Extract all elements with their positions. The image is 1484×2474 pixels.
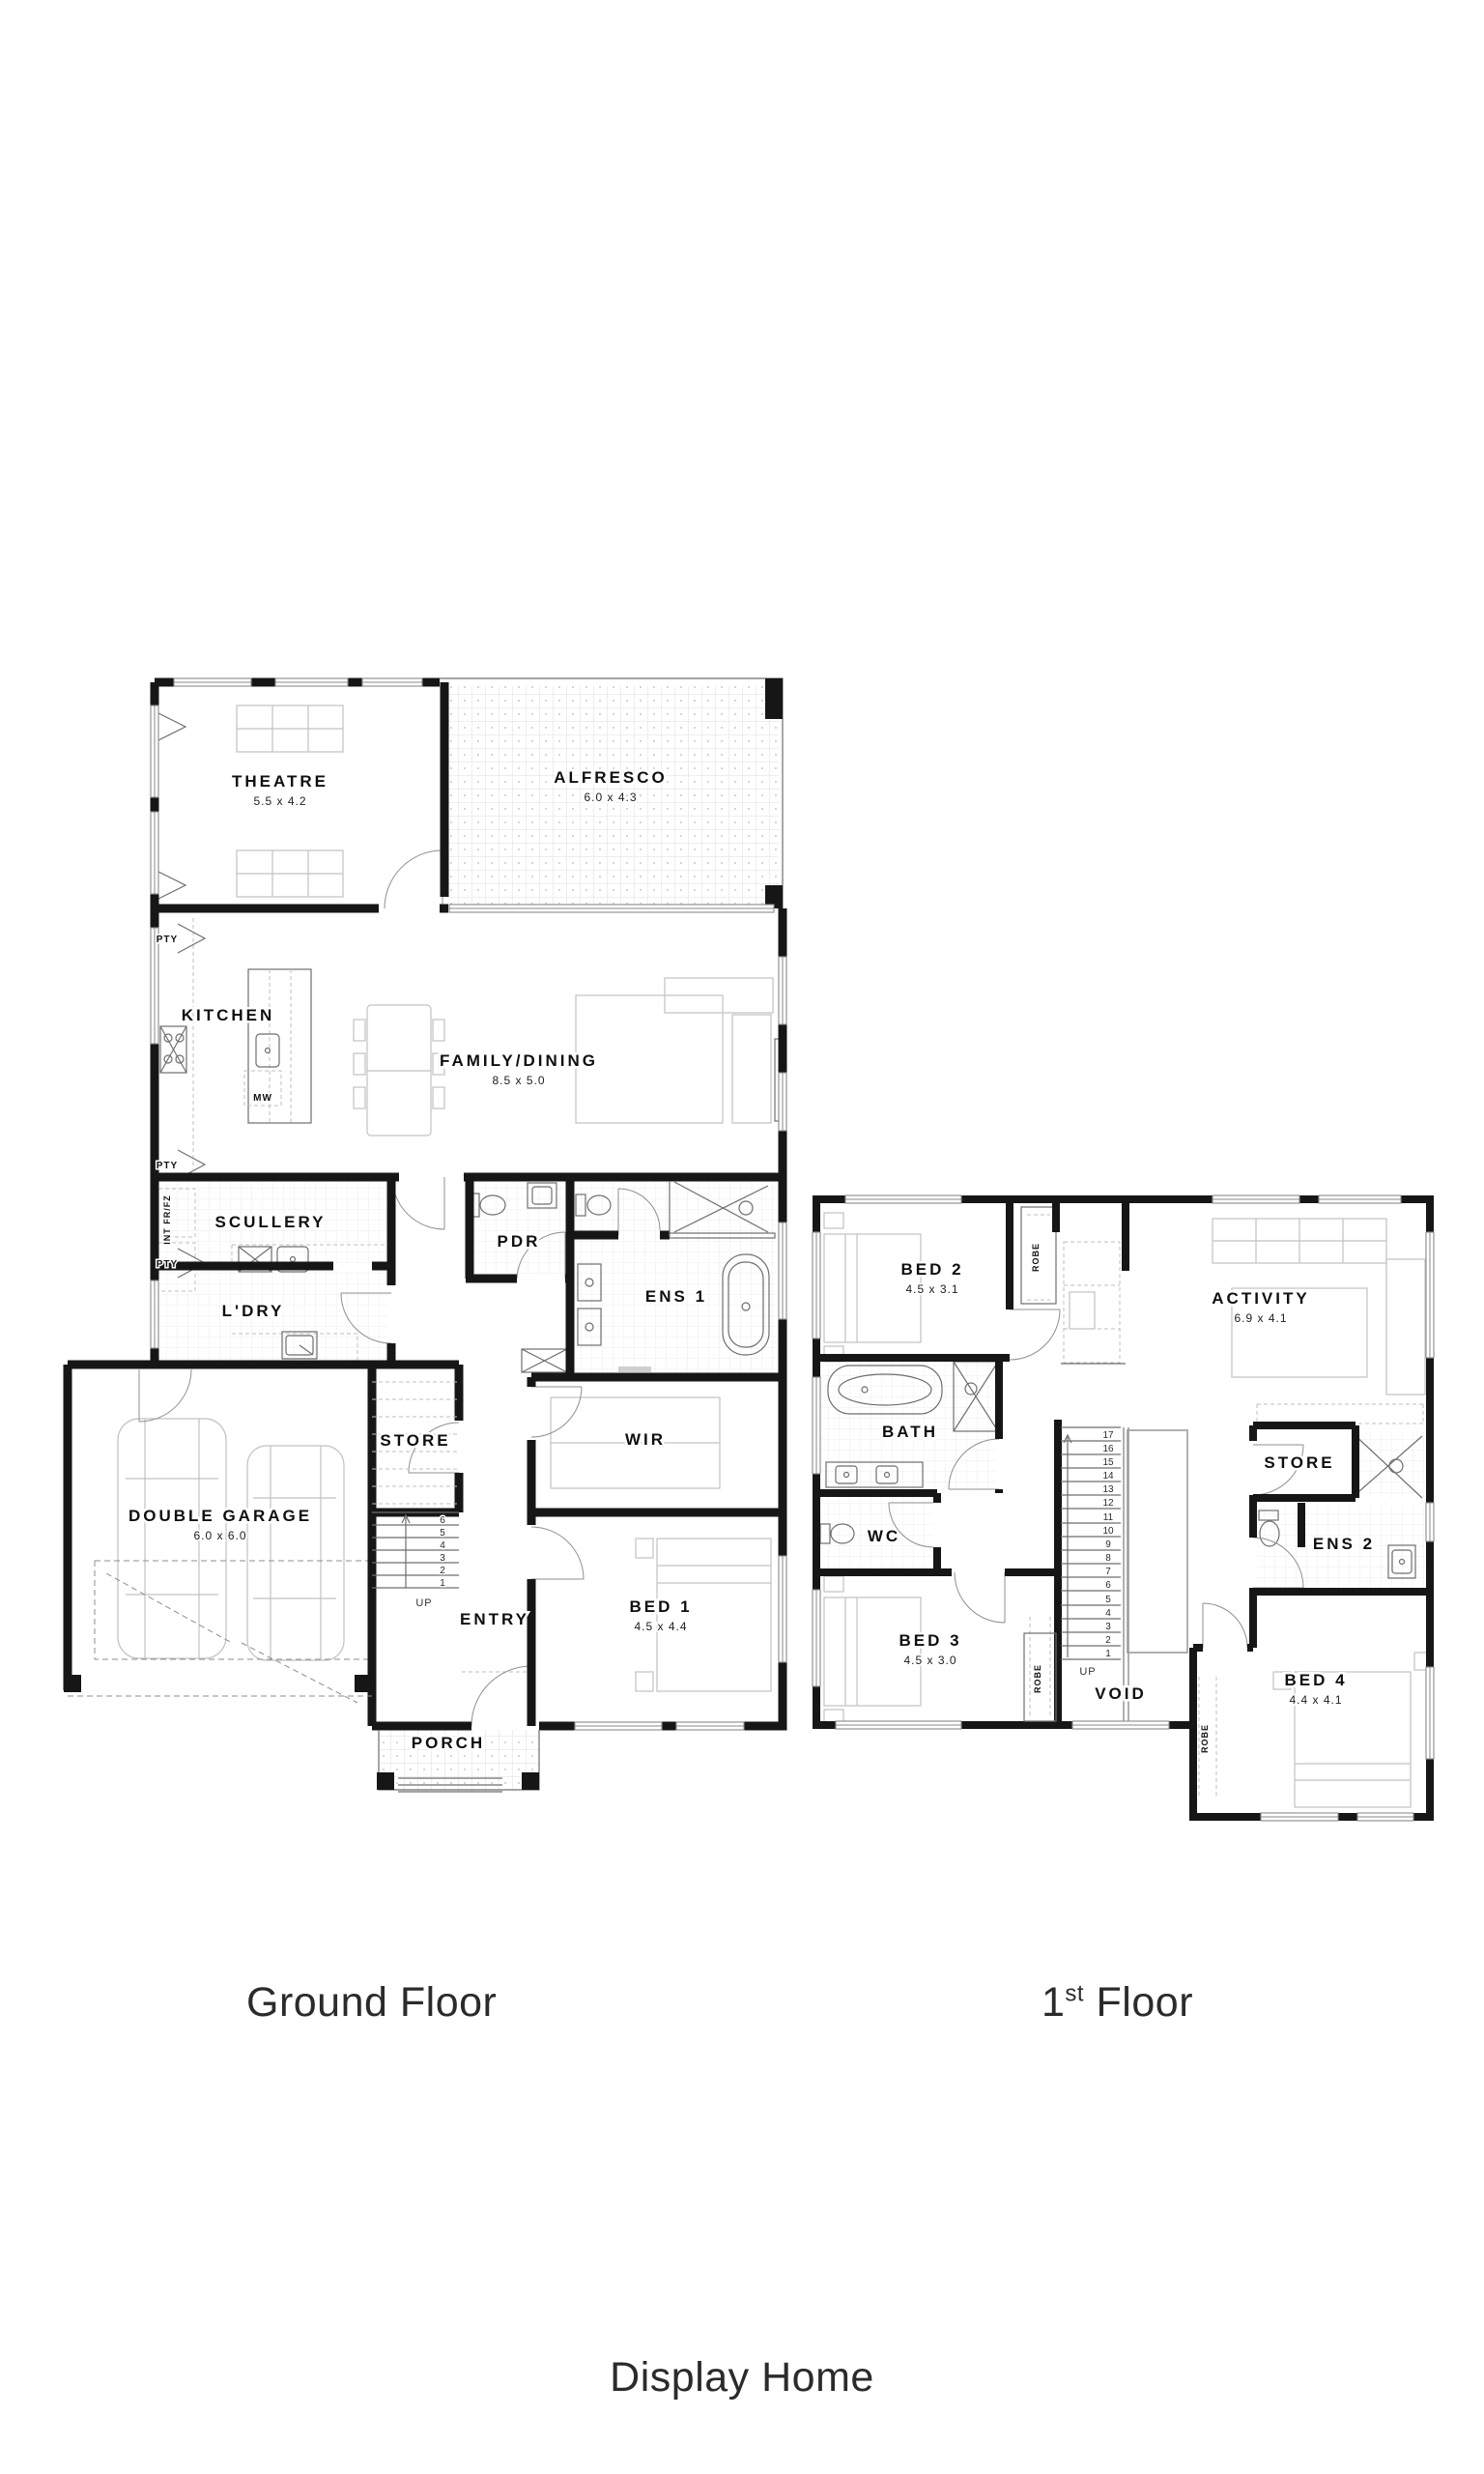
mw-label: MW (253, 1093, 272, 1104)
pty-label-1: PTY (157, 935, 178, 945)
first-floor-plan: BED 2 4.5 x 3.1 ACTIVITY 6.9 x 4.1 BATH … (807, 1184, 1444, 1860)
stair-num: 1 (1105, 1649, 1111, 1659)
stair-num: 16 (1102, 1444, 1114, 1454)
first-floor-caption-number: 1 (1042, 1979, 1065, 2026)
stair-num: 5 (1105, 1595, 1111, 1605)
bed3-label: BED 3 (899, 1631, 961, 1650)
first-floor-caption-word: Floor (1084, 1979, 1193, 2026)
stair-num: 8 (1105, 1553, 1111, 1564)
ens2-label: ENS 2 (1313, 1535, 1375, 1553)
garage-label: DOUBLE GARAGE (128, 1507, 312, 1525)
stair-num: 1 (440, 1578, 445, 1589)
ens1-label: ENS 1 (645, 1287, 707, 1306)
stair-num: 14 (1102, 1471, 1114, 1482)
alfresco-label: ALFRESCO (554, 768, 668, 787)
bed4-label: BED 4 (1284, 1671, 1347, 1689)
ground-floor-stairs (372, 1382, 459, 1588)
bed2-label: BED 2 (900, 1260, 963, 1279)
pdr-label: PDR (498, 1232, 541, 1251)
display-home-caption: Display Home (0, 2354, 1484, 2402)
stair-num: 2 (1105, 1635, 1111, 1646)
stair-num: 3 (440, 1553, 445, 1564)
up-label-first: UP (1079, 1666, 1096, 1678)
ground-floor-caption: Ground Floor (246, 1979, 497, 2027)
robe-label-1: ROBE (1031, 1243, 1041, 1272)
kitchen-label: KITCHEN (182, 1006, 275, 1024)
stair-num: 6 (440, 1515, 445, 1526)
ground-floor-plan: THEATRE 5.5 x 4.2 ALFRESCO 6.0 x 4.3 KIT… (39, 667, 792, 1827)
stair-num: 4 (440, 1540, 445, 1551)
first-floor-caption-ordinal: st (1065, 1981, 1084, 2007)
stair-num: 13 (1102, 1484, 1114, 1495)
robe-label-2: ROBE (1033, 1664, 1042, 1693)
theatre-label: THEATRE (232, 772, 328, 791)
wc-label: WC (868, 1527, 900, 1545)
stair-num: 11 (1103, 1512, 1114, 1523)
stair-num: 6 (1105, 1580, 1111, 1591)
bed3-dim: 4.5 x 3.0 (903, 1654, 956, 1667)
stair-num: 17 (1102, 1430, 1114, 1441)
theatre-dim: 5.5 x 4.2 (253, 794, 306, 808)
porch-label: PORCH (412, 1734, 485, 1752)
int-frfz-label: INT FR/FZ (162, 1194, 172, 1245)
family-dining-dim: 8.5 x 5.0 (492, 1074, 545, 1087)
up-label-ground: UP (415, 1597, 432, 1609)
stair-num: 2 (440, 1566, 445, 1576)
entry-label: ENTRY (460, 1610, 529, 1628)
stair-num: 3 (1105, 1622, 1111, 1632)
stair-num: 10 (1102, 1526, 1114, 1537)
bed2-dim: 4.5 x 3.1 (905, 1282, 958, 1296)
void-label: VOID (1095, 1684, 1147, 1703)
ldry-label: L'DRY (222, 1302, 285, 1320)
first-floor-caption: 1st Floor (1042, 1979, 1193, 2027)
bed1-label: BED 1 (629, 1597, 692, 1616)
store-label-first: STORE (1264, 1453, 1334, 1472)
pty-label-2: PTY (157, 1161, 178, 1171)
garage-dim: 6.0 x 6.0 (193, 1529, 246, 1542)
bath-label: BATH (882, 1423, 938, 1441)
alfresco-dim: 6.0 x 4.3 (584, 791, 637, 804)
pty-label-3: PTY (157, 1259, 178, 1270)
stair-num: 4 (1105, 1608, 1111, 1619)
bed1-dim: 4.5 x 4.4 (634, 1620, 687, 1633)
stair-num: 12 (1102, 1498, 1114, 1509)
floorplan-page: THEATRE 5.5 x 4.2 ALFRESCO 6.0 x 4.3 KIT… (0, 0, 1484, 2474)
robe-label-3: ROBE (1200, 1724, 1210, 1753)
wir-label: WIR (625, 1430, 666, 1449)
stair-num: 9 (1105, 1539, 1111, 1550)
stair-num: 7 (1105, 1567, 1111, 1577)
activity-dim: 6.9 x 4.1 (1234, 1311, 1287, 1325)
scullery-label: SCULLERY (215, 1213, 327, 1231)
activity-label: ACTIVITY (1212, 1289, 1309, 1308)
bed4-dim: 4.4 x 4.1 (1289, 1693, 1342, 1707)
stair-num: 5 (440, 1528, 445, 1539)
store-label: STORE (380, 1431, 450, 1450)
family-dining-label: FAMILY/DINING (440, 1051, 598, 1070)
stair-num: 15 (1102, 1457, 1114, 1468)
